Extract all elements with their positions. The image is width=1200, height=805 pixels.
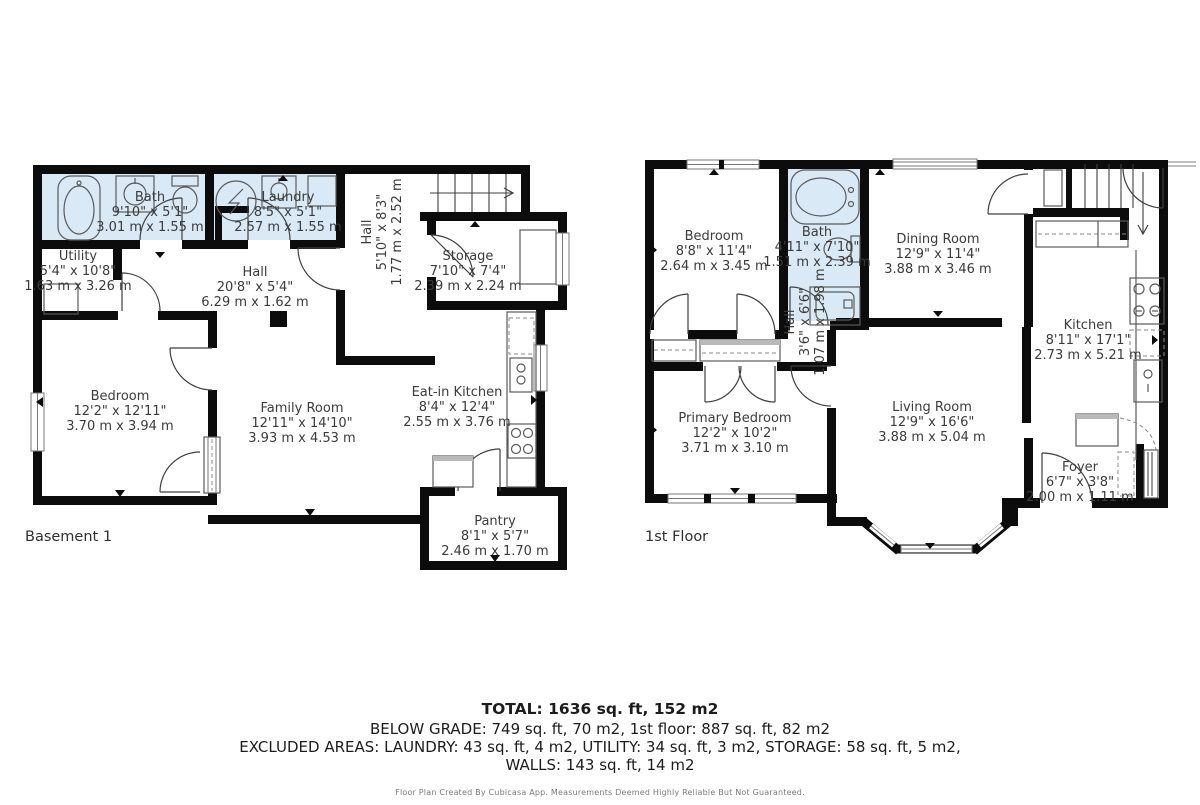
pantry-cabinet bbox=[433, 456, 473, 487]
room-label-hall-1f: Hall3'6" x 6'6"1.07 m x 1.98 m bbox=[783, 268, 829, 375]
room-label-family-room: Family Room12'11" x 14'10"3.93 m x 4.53 … bbox=[248, 401, 355, 447]
room-label-eat-in-kitchen: Eat-in Kitchen8'4" x 12'4"2.55 m x 3.76 … bbox=[403, 385, 510, 431]
room-label-laundry: Laundry8'5" x 5'1"2.57 m x 1.55 m bbox=[234, 190, 341, 236]
stove-icon-1f bbox=[1130, 278, 1164, 324]
floor-label-first: 1st Floor bbox=[645, 529, 708, 545]
bedroom-sliding-door bbox=[204, 437, 220, 493]
room-label-utility: Utility5'4" x 10'8"1.63 m x 3.26 m bbox=[24, 249, 131, 295]
room-label-bath-1f: Bath4'11" x 7'10"1.51 m x 2.39 m bbox=[763, 225, 870, 271]
room-label-foyer: Foyer6'7" x 3'8"2.00 m x 1.11 m bbox=[1026, 460, 1133, 506]
storage-shelf bbox=[520, 230, 556, 284]
basement-stairs bbox=[430, 174, 513, 212]
summary-block: TOTAL: 1636 sq. ft, 152 m2 BELOW GRADE: … bbox=[0, 700, 1200, 797]
first-stairs bbox=[1044, 164, 1148, 234]
kitchen-peninsula bbox=[1076, 414, 1118, 446]
closet-slider bbox=[700, 340, 780, 361]
room-label-bath-basement: Bath9'10" x 5'1"3.01 m x 1.55 m bbox=[96, 190, 203, 236]
room-label-storage: Storage7'10" x 7'4"2.39 m x 2.24 m bbox=[414, 249, 521, 295]
summary-disclaimer: Floor Plan Created By Cubicasa App. Meas… bbox=[0, 788, 1200, 797]
room-label-living-room: Living Room12'9" x 16'6"3.88 m x 5.04 m bbox=[878, 400, 985, 446]
summary-below-grade: BELOW GRADE: 749 sq. ft, 70 m2, 1st floo… bbox=[0, 720, 1200, 738]
closet-shelf bbox=[652, 340, 696, 361]
room-label-dining-room: Dining Room12'9" x 11'4"3.88 m x 3.46 m bbox=[884, 232, 991, 278]
room-label-pantry: Pantry8'1" x 5'7"2.46 m x 1.70 m bbox=[441, 514, 548, 560]
floor-label-basement: Basement 1 bbox=[25, 529, 112, 545]
floor-plan-drawing bbox=[0, 0, 1200, 640]
kitchen-sink-icon bbox=[1134, 360, 1162, 402]
room-label-kitchen: Kitchen8'11" x 17'1"2.73 m x 5.21 m bbox=[1034, 318, 1141, 364]
room-label-bedroom-1f: Bedroom8'8" x 11'4"2.64 m x 3.45 m bbox=[660, 229, 767, 275]
room-label-hall-upper-basement: Hall5'10" x 8'3"1.77 m x 2.52 m bbox=[360, 178, 406, 285]
summary-total: TOTAL: 1636 sq. ft, 152 m2 bbox=[0, 700, 1200, 718]
summary-excluded: EXCLUDED AREAS: LAUNDRY: 43 sq. ft, 4 m2… bbox=[0, 738, 1200, 756]
summary-walls: WALLS: 143 sq. ft, 14 m2 bbox=[0, 756, 1200, 774]
stair-closet bbox=[1044, 170, 1062, 206]
room-label-hall-basement: Hall20'8" x 5'4"6.29 m x 1.62 m bbox=[201, 265, 308, 311]
room-label-primary-bedroom: Primary Bedroom12'2" x 10'2"3.71 m x 3.1… bbox=[678, 411, 791, 457]
deck-line bbox=[1168, 162, 1196, 166]
stove-icon bbox=[508, 424, 536, 458]
room-label-bedroom-basement: Bedroom12'2" x 12'11"3.70 m x 3.94 m bbox=[66, 389, 173, 435]
floor-plan-canvas: Bath9'10" x 5'1"3.01 m x 1.55 m Laundry8… bbox=[0, 0, 1200, 805]
